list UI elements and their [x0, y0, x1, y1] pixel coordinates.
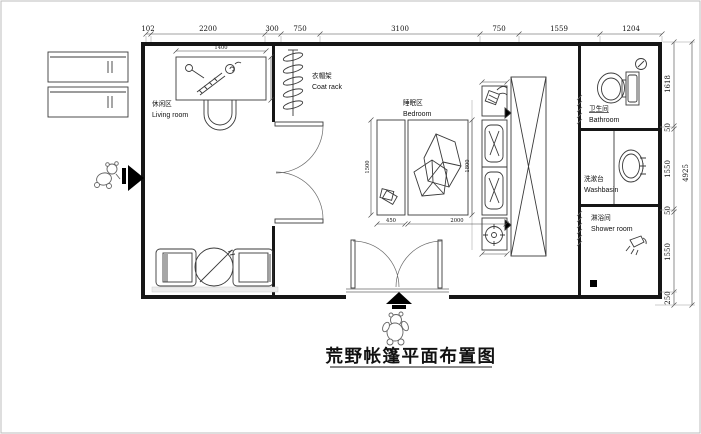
bear-mascot-south: [381, 312, 410, 345]
dim-top-3100: 3100: [391, 25, 409, 33]
floor-plan-canvas: 102 2200 300 750 3100 750 1559 1204 1618…: [0, 0, 701, 434]
svg-text:1500: 1500: [365, 160, 371, 173]
dim-right-50a: 50: [664, 123, 672, 132]
dim-right-1550b: 1550: [664, 243, 672, 261]
living-room-chair: [204, 100, 236, 130]
shower-label-en: Shower room: [591, 226, 633, 233]
bedroom-label-zh: 睡眠区: [403, 99, 423, 107]
dim-top-750b: 750: [492, 25, 505, 33]
svg-text:1800: 1800: [465, 159, 471, 172]
washbasin-icon: [614, 131, 646, 204]
bathroom-label-en: Bathroom: [589, 117, 620, 124]
svg-text:2000: 2000: [450, 218, 463, 224]
washbasin-label-zh: 洗漱台: [584, 174, 604, 183]
drawing-title: 荒野帐篷平面布置图: [325, 346, 497, 367]
wardrobe: [511, 77, 546, 256]
dim-top-102: 102: [141, 25, 154, 33]
living-room-label-en: Living room: [152, 112, 188, 119]
washbasin-label-en: Washbasin: [584, 187, 618, 194]
bedroom-bench: [377, 120, 405, 215]
bear-mascot-west: [95, 162, 121, 189]
dim-bench-depth: 1500: [365, 118, 374, 218]
nightstand-plant: [480, 80, 512, 119]
dim-right-250: 250: [664, 291, 672, 304]
living-room-rug: [152, 287, 278, 292]
floor-drain-icon: [590, 280, 597, 287]
bathroom-label-zh: 卫生间: [589, 104, 609, 113]
bedroom-label-en: Bedroom: [403, 111, 432, 118]
dim-bed-width: 1800: [465, 100, 475, 250]
double-door-west: [275, 122, 323, 223]
shower-head-icon: [626, 236, 646, 255]
bed-pillows: [482, 120, 507, 215]
dim-right-50b: 50: [664, 206, 672, 215]
double-door-south: [346, 240, 449, 292]
dim-top-750a: 750: [293, 25, 306, 33]
coat-rack-label-zh: 衣帽架: [312, 71, 332, 80]
dim-right-1550a: 1550: [664, 160, 672, 178]
entrance-arrow-up-icon: [386, 292, 412, 309]
toilet-icon: [598, 72, 640, 105]
coat-rack-label-en: Coat rack: [312, 84, 342, 91]
dimension-chain-top: 102 2200 300 750 3100 750 1559 1204: [141, 25, 664, 42]
dim-top-300: 300: [265, 25, 278, 33]
living-room-desk: [174, 49, 274, 103]
dim-desk-1400: 1400: [214, 45, 227, 51]
dim-bed-bottom: 450 2000: [375, 218, 509, 227]
dim-top-1559: 1559: [550, 25, 568, 33]
floor-plan-drawing: 102 2200 300 750 3100 750 1559 1204 1618…: [0, 0, 701, 434]
outside-sliding-panels: [48, 52, 128, 117]
dim-top-2200: 2200: [199, 25, 217, 33]
svg-text:450: 450: [386, 218, 396, 224]
shower-label-zh: 淋浴间: [591, 213, 611, 222]
dim-top-1204: 1204: [622, 25, 640, 33]
dim-right-total-4925: 4925: [682, 164, 690, 182]
living-room-label-zh: 休闲区: [152, 99, 172, 108]
living-room-armchairs-and-table: [156, 248, 273, 286]
coat-rack-icon: [283, 50, 304, 116]
fixture-callout-icon: [636, 59, 647, 70]
dim-right-1618: 1618: [664, 75, 672, 93]
entrance-arrow-icon: [122, 165, 144, 191]
bed: [408, 120, 468, 215]
